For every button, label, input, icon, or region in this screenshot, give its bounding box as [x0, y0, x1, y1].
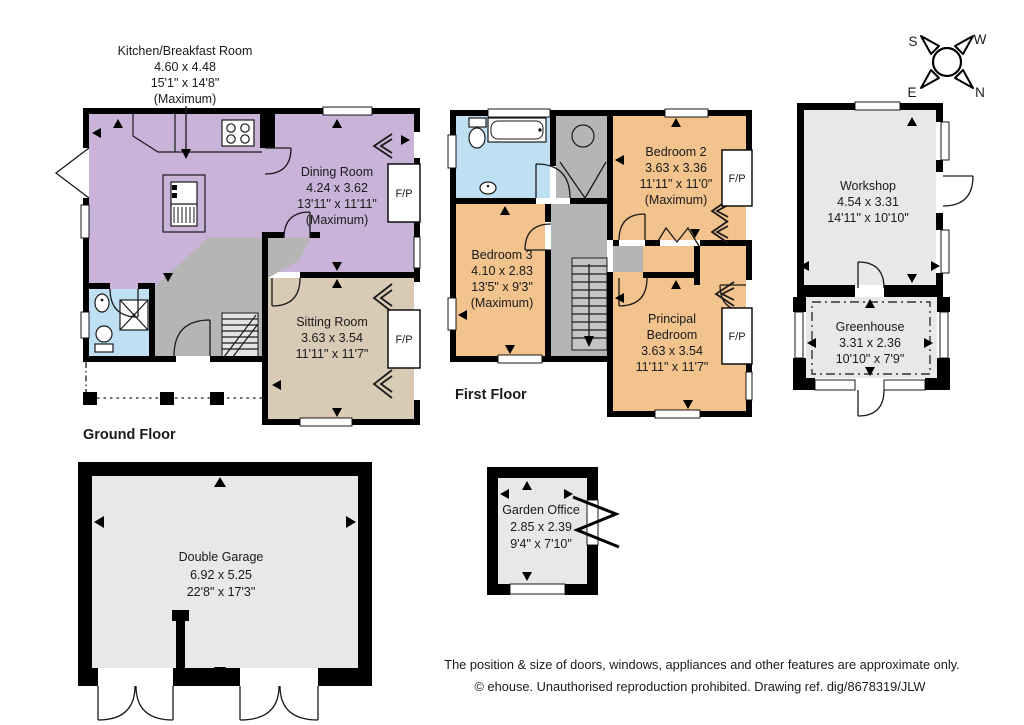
- bedroom2-name: Bedroom 2: [645, 145, 706, 159]
- stairs-ground-floor: [222, 313, 258, 358]
- dining-imperial: 13'11" x 11'11": [297, 197, 377, 211]
- footer: The position & size of doors, windows, a…: [444, 657, 959, 694]
- bedroom3-note: (Maximum): [471, 296, 534, 310]
- garage-door: [98, 686, 135, 720]
- bedroom2-imperial: 11'11" x 11'0": [640, 177, 713, 191]
- compass-south: S: [908, 34, 917, 49]
- kitchen-metric: 4.60 x 4.48: [154, 60, 216, 74]
- compass-east: E: [907, 85, 916, 100]
- kitchen-imperial: 15'1" x 14'8": [151, 76, 220, 90]
- workshop-name: Workshop: [840, 179, 896, 193]
- compass-north: N: [975, 85, 985, 100]
- garage-door: [240, 686, 279, 720]
- greenhouse-name: Greenhouse: [836, 320, 905, 334]
- footer-copyright: © ehouse. Unauthorised reproduction proh…: [475, 679, 927, 694]
- office-metric: 2.85 x 2.39: [510, 520, 572, 534]
- principal-imperial: 11'11" x 11'7": [636, 360, 709, 374]
- toilet-icon: [469, 118, 486, 127]
- toilet-icon: [96, 326, 112, 342]
- floorplan-page: F/P F/P F/P F/P S W E N Kitchen/Breakfas…: [0, 0, 1024, 725]
- floorplan-drawing: F/P F/P F/P F/P S W E N Kitchen/Breakfas…: [0, 0, 1024, 725]
- porch: [83, 362, 262, 405]
- principal-name-line2: Bedroom: [647, 328, 698, 342]
- stairs-first-floor: [572, 258, 607, 350]
- ground-floor-label: Ground Floor: [83, 427, 176, 443]
- garage-door: [280, 686, 318, 720]
- garage-imperial: 22'8" x 17'3": [187, 585, 256, 599]
- sitting-metric: 3.63 x 3.54: [301, 331, 363, 345]
- bedroom2-note: (Maximum): [645, 193, 708, 207]
- fireplace-label: F/P: [395, 188, 412, 200]
- bedroom2-metric: 3.63 x 3.36: [645, 161, 707, 175]
- sitting-name: Sitting Room: [296, 315, 368, 329]
- workshop-metric: 4.54 x 3.31: [837, 195, 899, 209]
- garage-door: [136, 686, 173, 720]
- garage-metric: 6.92 x 5.25: [190, 568, 252, 582]
- greenhouse-imperial: 10'10" x 7'9": [836, 352, 905, 366]
- footer-disclaimer: The position & size of doors, windows, a…: [444, 657, 959, 672]
- workshop-imperial: 14'11" x 10'10": [827, 211, 909, 225]
- bedroom3-metric: 4.10 x 2.83: [471, 264, 533, 278]
- office-imperial: 9'4" x 7'10": [510, 537, 572, 551]
- compass-west: W: [974, 32, 987, 47]
- dining-note: (Maximum): [306, 213, 369, 227]
- basin-icon: [480, 182, 496, 194]
- bedroom3-imperial: 13'5" x 9'3": [471, 280, 533, 294]
- dining-name: Dining Room: [301, 165, 373, 179]
- fireplace-label: F/P: [728, 331, 745, 343]
- fireplace-label: F/P: [728, 173, 745, 185]
- sitting-imperial: 11'11" x 11'7": [296, 347, 369, 361]
- greenhouse-metric: 3.31 x 2.36: [839, 336, 901, 350]
- compass-icon: S W E N: [907, 32, 986, 100]
- hob-icon: [222, 120, 254, 146]
- fireplace-label: F/P: [395, 334, 412, 346]
- bedroom3-name: Bedroom 3: [471, 248, 532, 262]
- kitchen-name: Kitchen/Breakfast Room: [118, 44, 253, 58]
- dining-metric: 4.24 x 3.62: [306, 181, 368, 195]
- garage-name: Double Garage: [179, 550, 264, 564]
- office-name: Garden Office: [502, 503, 580, 517]
- first-floor-label: First Floor: [455, 387, 527, 403]
- principal-metric: 3.63 x 3.54: [641, 344, 703, 358]
- principal-name-line1: Principal: [648, 312, 696, 326]
- kitchen-note: (Maximum): [154, 92, 217, 106]
